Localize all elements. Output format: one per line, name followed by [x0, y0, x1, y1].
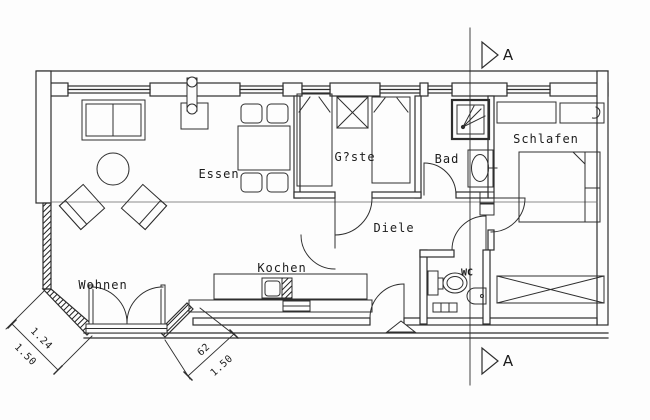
- bottom-wall: [404, 318, 597, 325]
- double-bed: [519, 152, 600, 222]
- section-label-a-top: A: [503, 46, 513, 64]
- bottom-wall: [193, 318, 370, 325]
- room-label-wc: WC: [461, 268, 473, 279]
- left-wall-hatched: [43, 203, 51, 289]
- door-wc: [452, 216, 486, 250]
- room-label-wohnen: Wohnen: [78, 278, 127, 292]
- doors: [86, 163, 525, 333]
- left-wall: [36, 71, 51, 203]
- room-label-essen: Essen: [198, 167, 239, 181]
- section-arrow-bottom: [482, 348, 498, 374]
- door-bad: [424, 163, 456, 195]
- door-schlafen: [491, 198, 525, 232]
- counter-front: [189, 300, 372, 312]
- sink-basin: [265, 281, 280, 296]
- armchair: [59, 184, 104, 229]
- room-label-schlafen: Schlafen: [513, 132, 579, 146]
- room-label-kochen: Kochen: [257, 261, 306, 275]
- french-doors: [86, 285, 167, 333]
- section-label-a-bottom: A: [503, 352, 513, 370]
- dimension-corner: [6, 291, 92, 374]
- dining-table: [238, 126, 290, 170]
- floor-mat: [433, 303, 457, 312]
- blanket-fold: [573, 152, 585, 164]
- guest-bed: [297, 94, 410, 186]
- door-gaeste: [335, 198, 372, 248]
- kitchen-counter: [189, 274, 372, 312]
- room-label-bad: Bad: [435, 152, 460, 166]
- washbasin: [468, 150, 497, 187]
- coffee-table: [97, 153, 129, 185]
- wardrobe: [497, 102, 556, 123]
- shower: [452, 100, 489, 139]
- sofa: [82, 100, 145, 140]
- armchair: [121, 184, 166, 229]
- crossed-wardrobe: [497, 276, 604, 303]
- room-label-diele: Diele: [373, 221, 414, 235]
- section-arrow-top: [482, 42, 498, 68]
- shaft-symbol: [337, 97, 368, 128]
- floor-plan-svg: [0, 0, 650, 420]
- floor-plan-scan: Essen G?ste Bad Schlafen Diele Wohnen Ko…: [0, 0, 650, 420]
- dining-set: [238, 104, 290, 192]
- room-label-gaeste: G?ste: [334, 150, 375, 164]
- exterior-walls: [36, 71, 608, 338]
